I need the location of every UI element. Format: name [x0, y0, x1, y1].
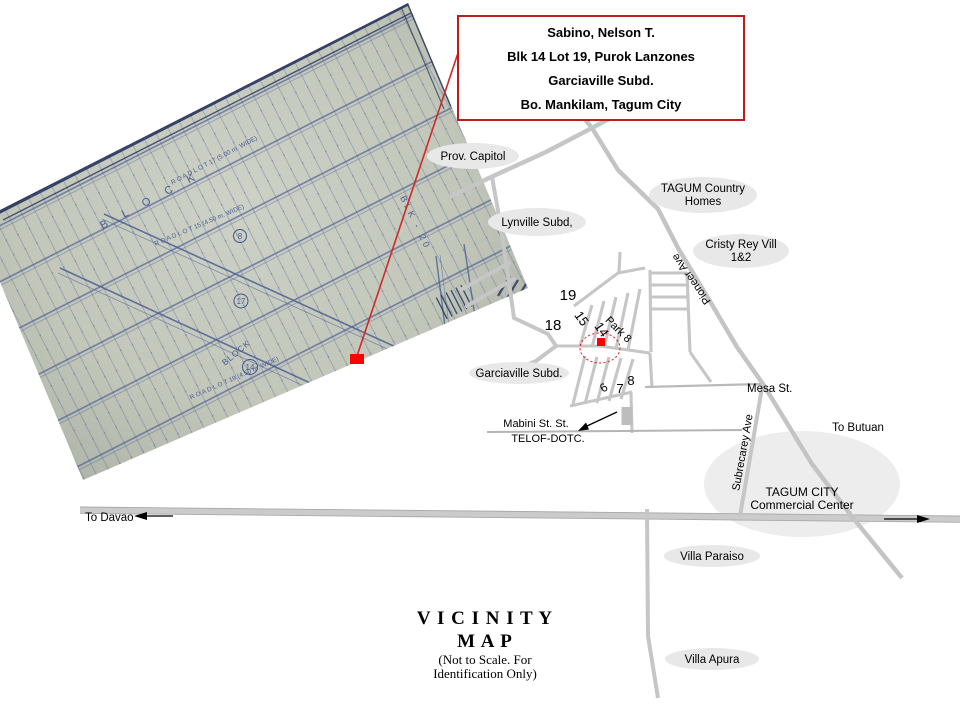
title-line-1: V I C I N I T Y — [385, 607, 585, 630]
owner-lot-address: Blk 14 Lot 19, Purok Lanzones — [459, 49, 743, 64]
commercial-center-label-1: TAGUM CITY — [765, 485, 838, 499]
blueprint-lot-marker — [350, 354, 364, 364]
number-19: 19 — [560, 287, 577, 304]
title-note-2: Identification Only) — [385, 667, 585, 681]
place-label-ellipses: Prov. Capitol Lynville Subd, TAGUM Count… — [427, 143, 854, 670]
villa-road — [647, 509, 658, 698]
owner-name: Sabino, Nelson T. — [459, 25, 743, 40]
mabini-street-road — [487, 430, 742, 432]
owner-info-box: Sabino, Nelson T. Blk 14 Lot 19, Purok L… — [457, 15, 745, 121]
owner-subdivision: Garciaville Subd. — [459, 73, 743, 88]
villa-apura-label: Villa Apura — [685, 654, 740, 666]
telof-building-block — [622, 407, 633, 425]
target-lot-square — [597, 338, 605, 346]
prov-capitol-label: Prov. Capitol — [441, 151, 506, 163]
cristy-rey-vill-label-2: 1&2 — [731, 252, 751, 264]
number-7: 7 — [616, 381, 623, 396]
garciaville-label: Garciaville Subd. — [476, 368, 563, 380]
mesa-street-road — [645, 384, 762, 387]
tagum-country-homes-label-1: TAGUM Country — [661, 183, 745, 195]
mesa-st-label: Mesa St. — [747, 383, 792, 395]
cristy-rey-vill-label-1: Cristy Rey Vill — [705, 239, 776, 251]
number-8: 8 — [627, 373, 634, 388]
blueprint-circle-14-num: 14 — [246, 363, 255, 372]
telof-dotc-label: TELOF-DOTC. — [511, 433, 584, 445]
tagum-country-homes-label-2: Homes — [685, 196, 722, 208]
vicinity-map-title-block: V I C I N I T Y M A P (Not to Scale. For… — [385, 607, 585, 681]
to-davao-label: To Davao — [85, 512, 134, 524]
title-note-1: (Not to Scale. For — [385, 653, 585, 667]
number-18: 18 — [545, 317, 562, 334]
telof-arrow-head — [578, 423, 589, 432]
title-line-2: M A P — [385, 630, 585, 653]
blueprint-circle-8-num: 8 — [238, 232, 243, 241]
owner-barangay-city: Bo. Mankilam, Tagum City — [459, 97, 743, 112]
villa-paraiso-label: Villa Paraiso — [680, 551, 744, 563]
lynville-label: Lynville Subd, — [501, 217, 572, 229]
to-butuan-label: To Butuan — [832, 422, 884, 434]
mabini-st-label: Mabini St. St. — [503, 418, 568, 430]
blueprint-circle-17-num: 17 — [237, 297, 246, 306]
vicinity-map-page: LOT 495-A-3 (LRC) Psd-217103 R O A D L O… — [0, 0, 960, 720]
telof-arrow-shaft — [587, 412, 617, 426]
commercial-center-label-2: Commercial Center — [750, 498, 853, 512]
